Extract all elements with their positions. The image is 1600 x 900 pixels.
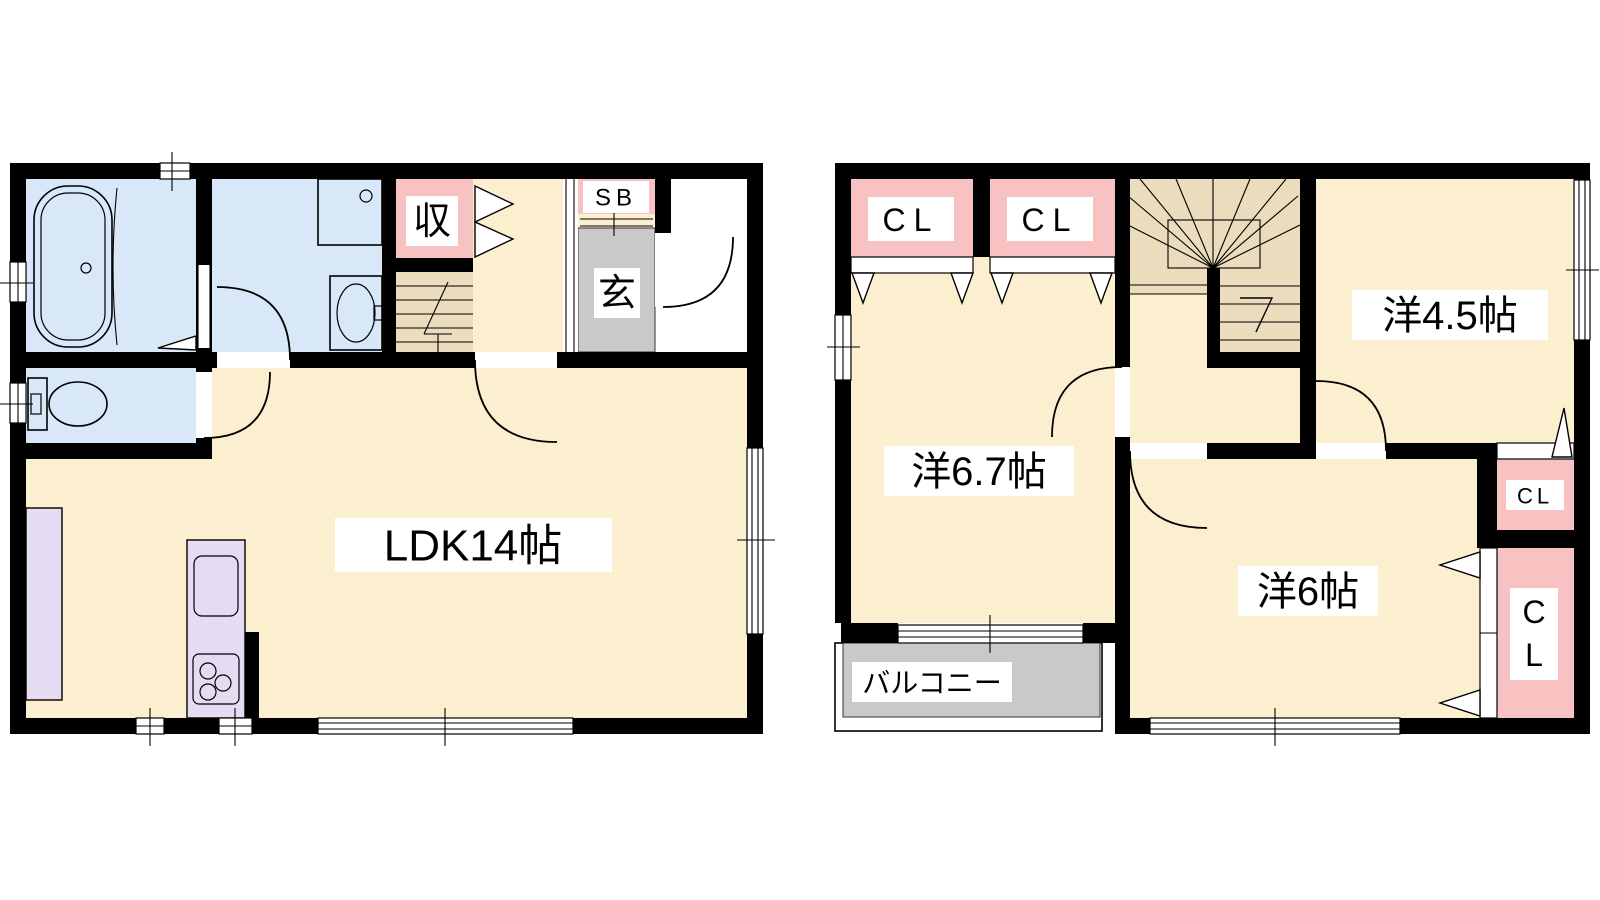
- closet-large-label-l: L: [1525, 637, 1543, 673]
- side-counter: [26, 508, 62, 700]
- floorplan-image: LDK14帖 収 SB 玄: [0, 0, 1600, 900]
- ldk-label: LDK14帖: [384, 522, 563, 571]
- room6-label: 洋6帖: [1257, 570, 1359, 614]
- closet-small-label: CL: [1517, 484, 1553, 509]
- room45-door: [1316, 443, 1386, 459]
- closet-large-label-c: C: [1522, 594, 1545, 630]
- bathroom-door: [198, 265, 210, 348]
- genkan-step: [563, 179, 578, 352]
- storage-label: 収: [413, 201, 451, 243]
- floorplan-canvas: LDK14帖 収 SB 玄: [0, 0, 1600, 900]
- closet2-label: CL: [1022, 202, 1079, 238]
- toilet-door: [196, 372, 212, 438]
- bathroom: [26, 179, 196, 352]
- second-floor-plan: CL CL 洋6.7帖 洋4.5帖 洋6帖 CL C L バルコニー: [827, 163, 1599, 746]
- balcony-label: バルコニー: [862, 668, 1001, 699]
- toilet-room: [26, 368, 196, 443]
- washroom: [196, 179, 383, 352]
- closet1-label: CL: [883, 202, 940, 238]
- hall-door: [475, 352, 557, 368]
- entrance-label: 玄: [598, 273, 636, 315]
- room67-label: 洋6.7帖: [911, 450, 1047, 494]
- front-door: [655, 233, 671, 307]
- room6-door: [1130, 443, 1207, 459]
- first-floor-plan: LDK14帖 収 SB 玄: [0, 152, 775, 746]
- shoebox-label: SB: [595, 185, 637, 212]
- washroom-door: [217, 352, 290, 368]
- stairs-1f: [396, 272, 473, 358]
- room67-door: [1115, 367, 1130, 437]
- room45-label: 洋4.5帖: [1382, 294, 1518, 338]
